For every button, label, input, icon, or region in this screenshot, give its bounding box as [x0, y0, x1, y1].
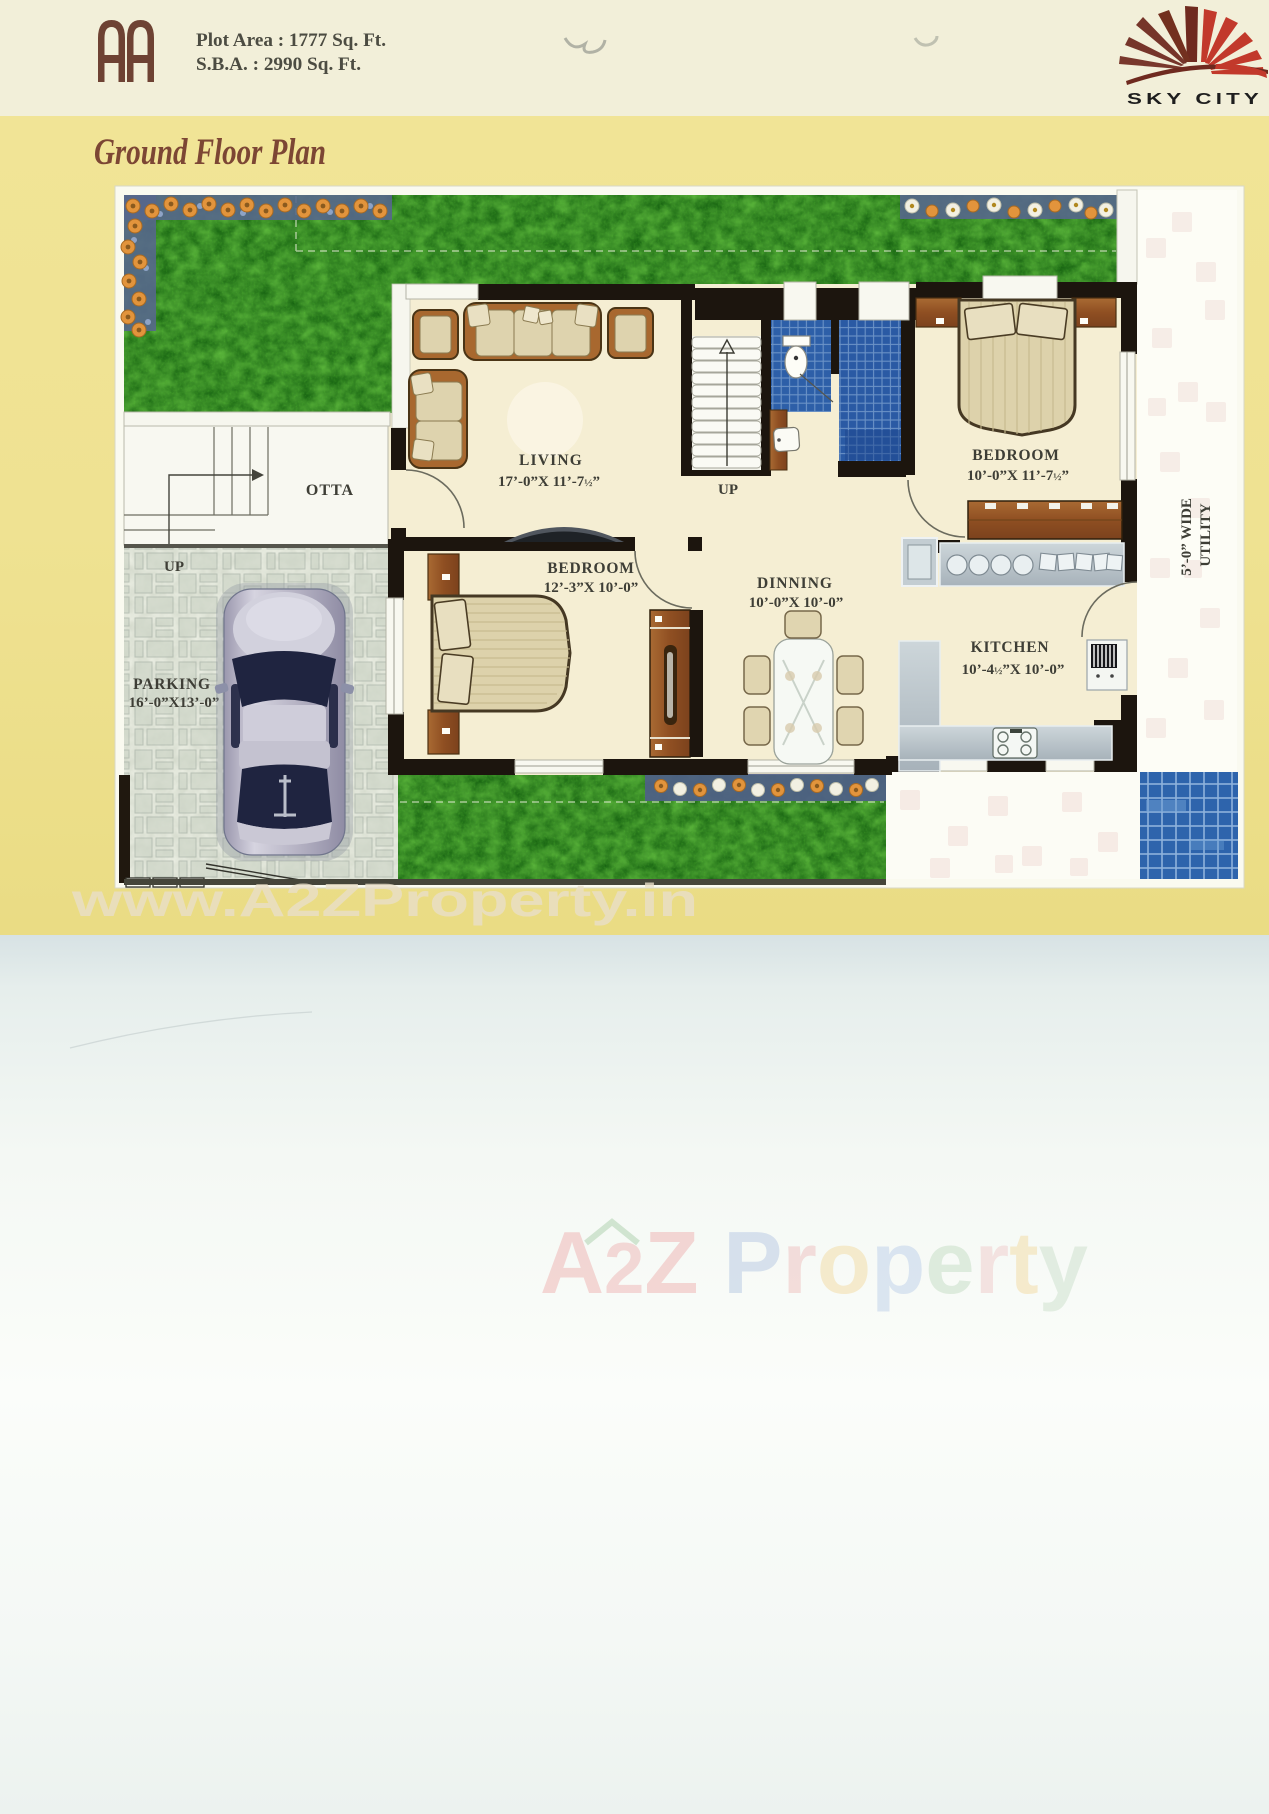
- svg-text:17’-0”X 11’-7½”: 17’-0”X 11’-7½”: [498, 474, 600, 490]
- svg-text:BEDROOM: BEDROOM: [972, 447, 1059, 464]
- svg-text:UP: UP: [718, 482, 738, 498]
- svg-text:S.B.A. : 2990 Sq. Ft.: S.B.A. : 2990 Sq. Ft.: [196, 54, 361, 75]
- svg-text:12’-3”X 10’-0”: 12’-3”X 10’-0”: [544, 580, 639, 596]
- svg-text:Ground Floor Plan: Ground Floor Plan: [94, 132, 326, 173]
- svg-text:DINNING: DINNING: [757, 575, 833, 592]
- svg-text:www.A2ZProperty.in: www.A2ZProperty.in: [71, 874, 698, 926]
- svg-text:OTTA: OTTA: [306, 482, 354, 499]
- svg-text:10’-0”X 11’-7½”: 10’-0”X 11’-7½”: [967, 468, 1069, 484]
- svg-text:16’-0”X13’-0”: 16’-0”X13’-0”: [129, 695, 220, 711]
- svg-text:UP: UP: [164, 559, 184, 575]
- svg-text:KITCHEN: KITCHEN: [971, 639, 1050, 656]
- svg-text:10’-4½”X 10’-0”: 10’-4½”X 10’-0”: [962, 662, 1065, 678]
- svg-text:SKY CITY: SKY CITY: [1127, 91, 1263, 108]
- svg-text:10’-0”X 10’-0”: 10’-0”X 10’-0”: [749, 595, 844, 611]
- svg-text:Plot Area : 1777 Sq. Ft.: Plot Area : 1777 Sq. Ft.: [196, 30, 386, 51]
- svg-text:PARKING: PARKING: [133, 676, 211, 693]
- svg-text:BEDROOM: BEDROOM: [547, 560, 634, 577]
- svg-text:LIVING: LIVING: [519, 452, 583, 469]
